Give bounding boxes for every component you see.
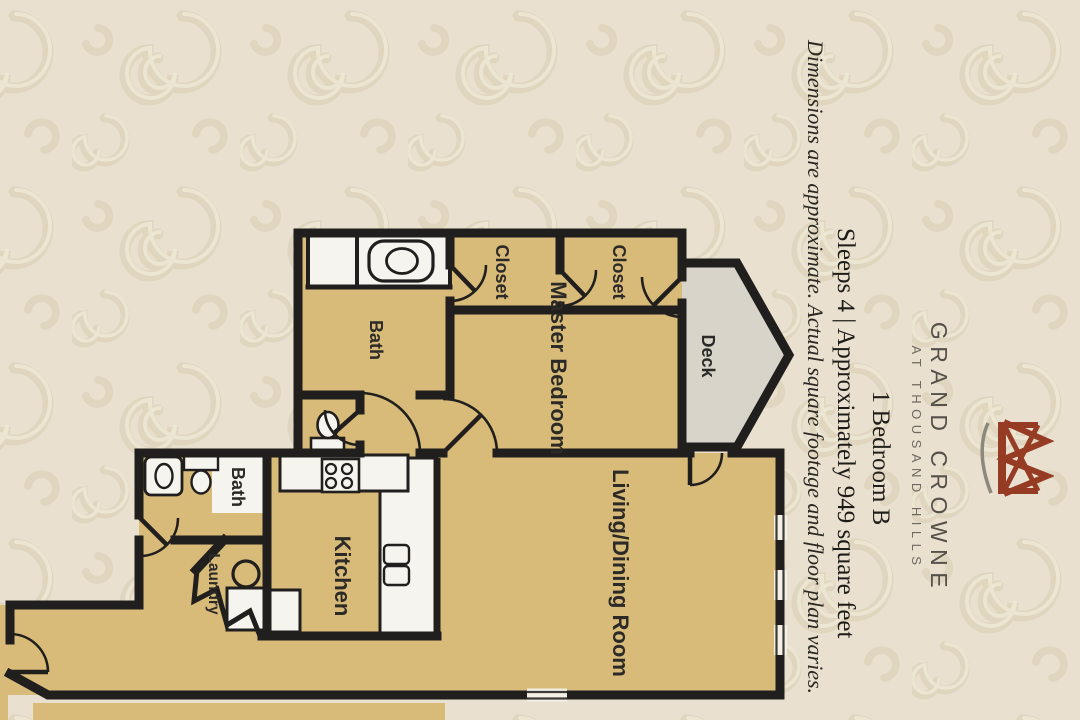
flyer-page: GRAND CROWNE AT THOUSAND HILLS 1 Bedroom…	[0, 0, 1080, 720]
toilet-tank-icon	[184, 456, 218, 470]
screenshot-root: GRAND CROWNE AT THOUSAND HILLS 1 Bedroom…	[0, 0, 1080, 720]
sink-basin-icon	[384, 566, 409, 585]
bath-sink-icon	[145, 457, 182, 495]
room-label-master-bedroom: Master Bedroom	[546, 281, 571, 455]
room-label-closet-lower: Closet	[492, 244, 512, 299]
room-label-guest-bath: Bath	[228, 467, 248, 507]
room-label-laundry: Laundry	[205, 553, 222, 615]
room-label-living-dining: Living/Dining Room	[608, 469, 633, 677]
room-label-closet-upper: Closet	[609, 244, 629, 299]
sink-basin-icon	[384, 545, 409, 564]
vanity-block	[308, 233, 357, 287]
room-label-kitchen: Kitchen	[330, 536, 355, 617]
room-label-master-bath: Bath	[366, 320, 386, 360]
room-label-deck: Deck	[698, 334, 718, 378]
cabinet-block	[267, 590, 300, 632]
toilet-icon	[192, 471, 211, 494]
floor-plan: Closet Closet Master Bedroom Bath Deck L…	[0, 0, 1080, 720]
